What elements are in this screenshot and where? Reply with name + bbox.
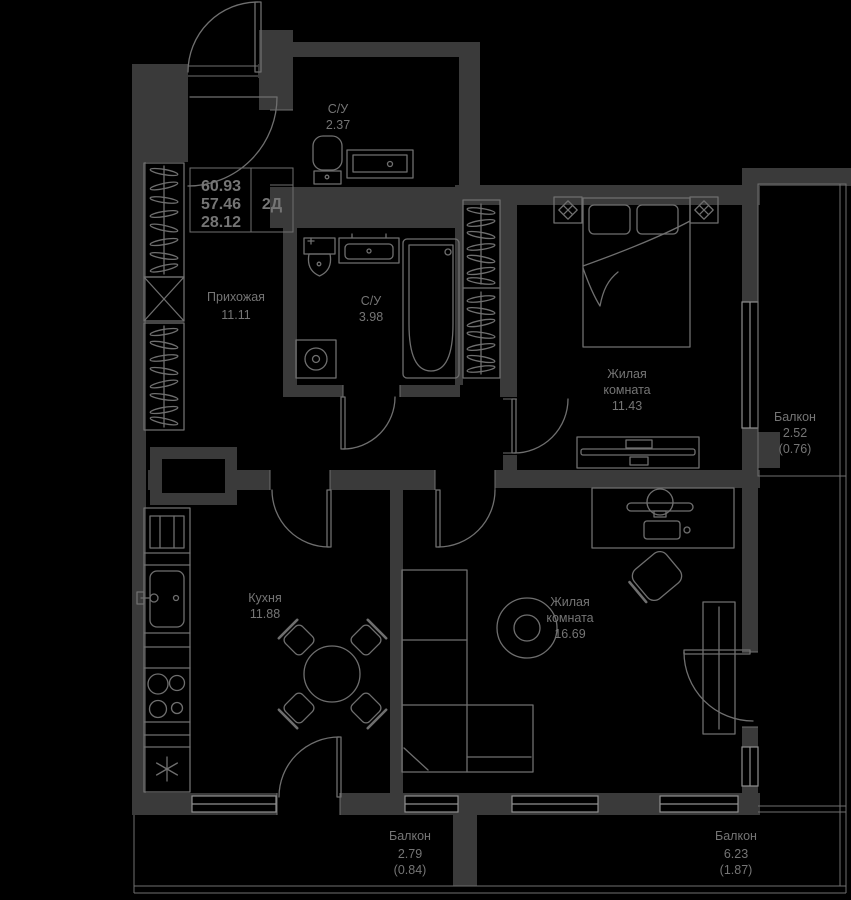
sofa-icon (402, 570, 533, 772)
bedroom-wardrobe-icon (463, 200, 500, 378)
chair-icon (279, 620, 317, 658)
bathroom-main-door-icon (341, 397, 395, 449)
entry-door-icon (188, 2, 261, 72)
bathroom-top-fixtures (313, 136, 413, 184)
desk-icon (592, 488, 734, 548)
info-area-kitchen: 28.12 (201, 214, 241, 231)
living-window-mid-icon (512, 796, 598, 812)
label-balcony-right-area: 2.52 (783, 426, 807, 440)
toilet-icon (313, 136, 342, 184)
sink-cabinet-icon (347, 150, 413, 178)
label-bedroom-name-1: Жилая (607, 367, 647, 381)
office-chair-icon (626, 548, 686, 607)
label-balcony-bl-name: Балкон (389, 829, 431, 843)
vent-shaft (150, 447, 237, 505)
label-bedroom-name-2: комната (603, 383, 650, 397)
label-living-name-1: Жилая (550, 595, 590, 609)
info-area-total: 60.93 (201, 178, 241, 195)
info-area-living: 57.46 (201, 196, 241, 213)
bedroom-window-icon (742, 302, 758, 428)
living-door-icon (436, 490, 495, 547)
label-balcony-br-name: Балкон (715, 829, 757, 843)
kitchen-window-icon (192, 796, 276, 812)
vestibule-door-icon (188, 97, 277, 186)
chair-icon (279, 690, 317, 728)
label-hallway-name: Прихожая (207, 290, 265, 304)
label-hallway-area: 11.11 (221, 308, 250, 322)
dishwasher-icon (150, 516, 184, 548)
stove-icon (148, 674, 185, 718)
tv-stand-icon (577, 437, 699, 468)
fridge-icon (157, 757, 178, 781)
label-balcony-bl-coeff: (0.84) (394, 863, 427, 877)
living-window-left-icon (405, 796, 458, 812)
bathtub-icon (403, 239, 459, 378)
label-balcony-right-name: Балкон (774, 410, 816, 424)
washing-machine-icon (296, 340, 336, 378)
dining-table-icon (304, 646, 360, 702)
label-living-area: 16.69 (554, 627, 585, 641)
living-window-right-icon (660, 796, 738, 812)
info-type-label: 2Д (262, 196, 283, 213)
label-kitchen-name: Кухня (248, 591, 281, 605)
label-bathroom-main-area: 3.98 (359, 310, 383, 324)
vanity-sink-icon (339, 234, 399, 263)
kitchen-fixtures (137, 508, 386, 792)
kitchen-balcony-door-icon (279, 737, 341, 797)
label-bathroom-top-area: 2.37 (326, 118, 350, 132)
label-balcony-right-coeff: (0.76) (779, 442, 812, 456)
label-bathroom-top-name: С/У (328, 102, 349, 116)
label-balcony-br-coeff: (1.87) (720, 863, 753, 877)
bed-icon (583, 198, 690, 347)
living-wardrobe-icon (703, 602, 735, 734)
bedroom-furniture (554, 197, 718, 468)
floor-lamp-icon (497, 598, 557, 658)
label-living-name-2: комната (546, 611, 593, 625)
label-bedroom-area: 11.43 (612, 399, 642, 413)
bedroom-door-icon (512, 399, 568, 453)
chair-icon (348, 620, 386, 658)
hallway-wardrobe-icon (144, 163, 184, 430)
chair-icon (348, 690, 386, 728)
floor-plan: 60.93 57.46 28.12 2Д С/У 2.37 Прихожая 1… (0, 0, 851, 900)
label-bathroom-main-name: С/У (361, 294, 382, 308)
toilet-icon (304, 238, 335, 276)
living-side-window-icon (742, 747, 758, 786)
label-balcony-bl-area: 2.79 (398, 847, 422, 861)
label-kitchen-area: 11.88 (250, 607, 280, 621)
kitchen-door-icon (272, 490, 331, 547)
label-balcony-br-area: 6.23 (724, 847, 748, 861)
